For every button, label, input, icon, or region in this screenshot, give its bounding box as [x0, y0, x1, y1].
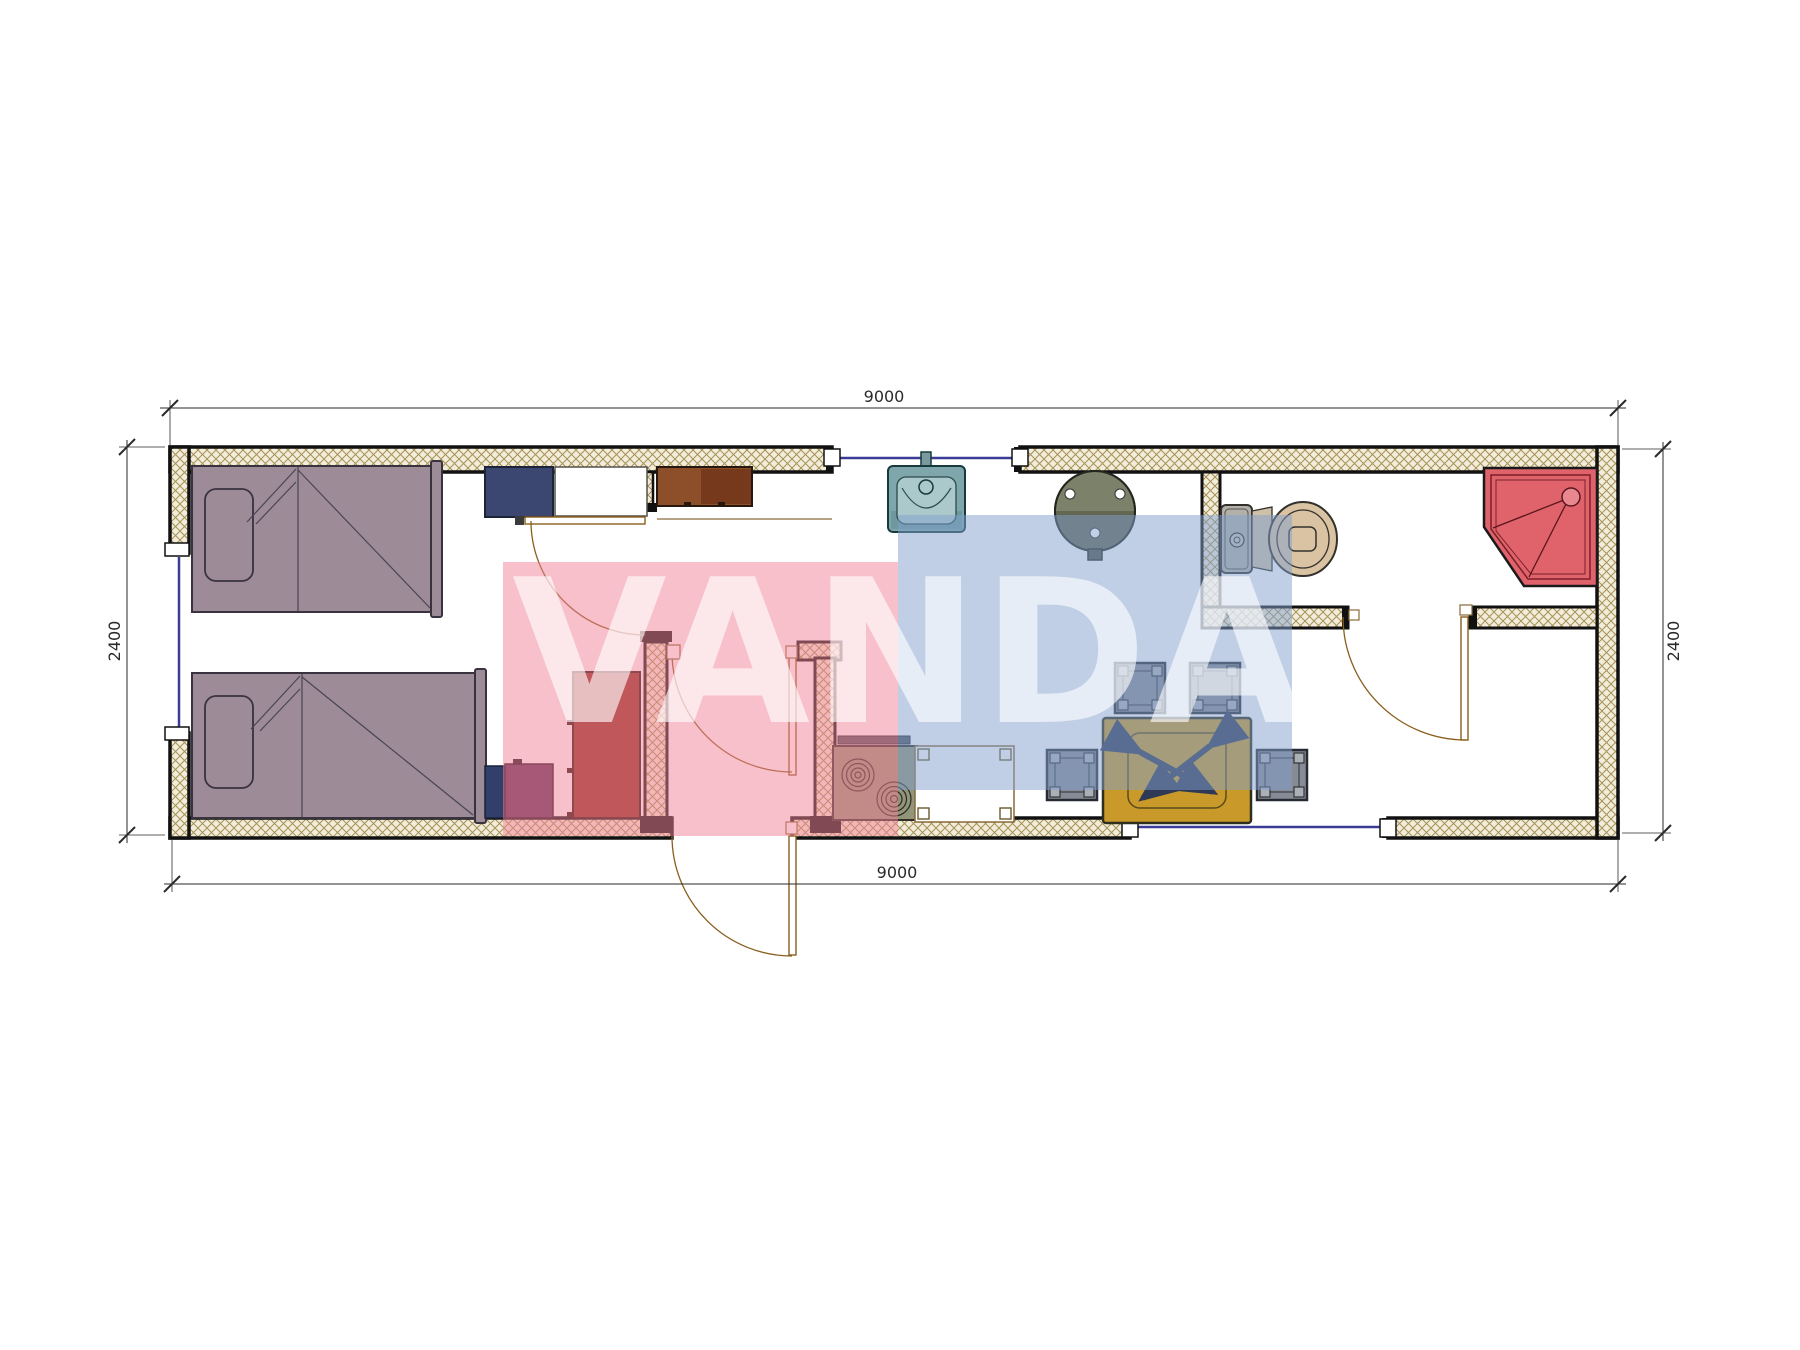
- corner-shower-tray: [1484, 468, 1597, 586]
- floor-plan-canvas: VANDA 9000 9000 2400: [0, 0, 1800, 1350]
- dim-bottom: 9000: [164, 840, 1626, 892]
- wardrobe-navy: [485, 467, 553, 517]
- floor-plan-drawing: VANDA 9000 9000 2400: [0, 0, 1800, 1350]
- watermark: VANDA: [503, 515, 1306, 836]
- top-window-frame-right: [1012, 449, 1028, 466]
- left-wall-bottom: [170, 733, 189, 838]
- bed-1: [192, 461, 442, 617]
- upper-cabinet-brown: [657, 467, 832, 519]
- shelf-cabinet: [555, 467, 647, 516]
- left-window-frame-bottom: [165, 727, 189, 740]
- bottom-wall-right: [1388, 818, 1618, 838]
- watermark-text: VANDA: [512, 537, 1306, 770]
- dim-top: 9000: [160, 387, 1626, 445]
- dim-right: 2400: [1622, 441, 1683, 841]
- right-wall: [1597, 447, 1618, 838]
- dim-bottom-label: 9000: [877, 863, 918, 882]
- dim-right-label: 2400: [1664, 621, 1683, 662]
- bathroom-door: [1343, 605, 1472, 740]
- bottom-window-frame-right: [1380, 819, 1396, 837]
- left-window-frame-top: [165, 543, 189, 556]
- dim-left: 2400: [105, 439, 165, 843]
- bed-2: [192, 669, 486, 823]
- left-wall-top: [170, 447, 189, 553]
- bathroom-bottom-wall-2: [1470, 607, 1597, 628]
- dim-top-label: 9000: [864, 387, 905, 406]
- nightstand-navy: [485, 766, 505, 818]
- dim-left-label: 2400: [105, 621, 124, 662]
- top-window-frame-left: [824, 449, 840, 466]
